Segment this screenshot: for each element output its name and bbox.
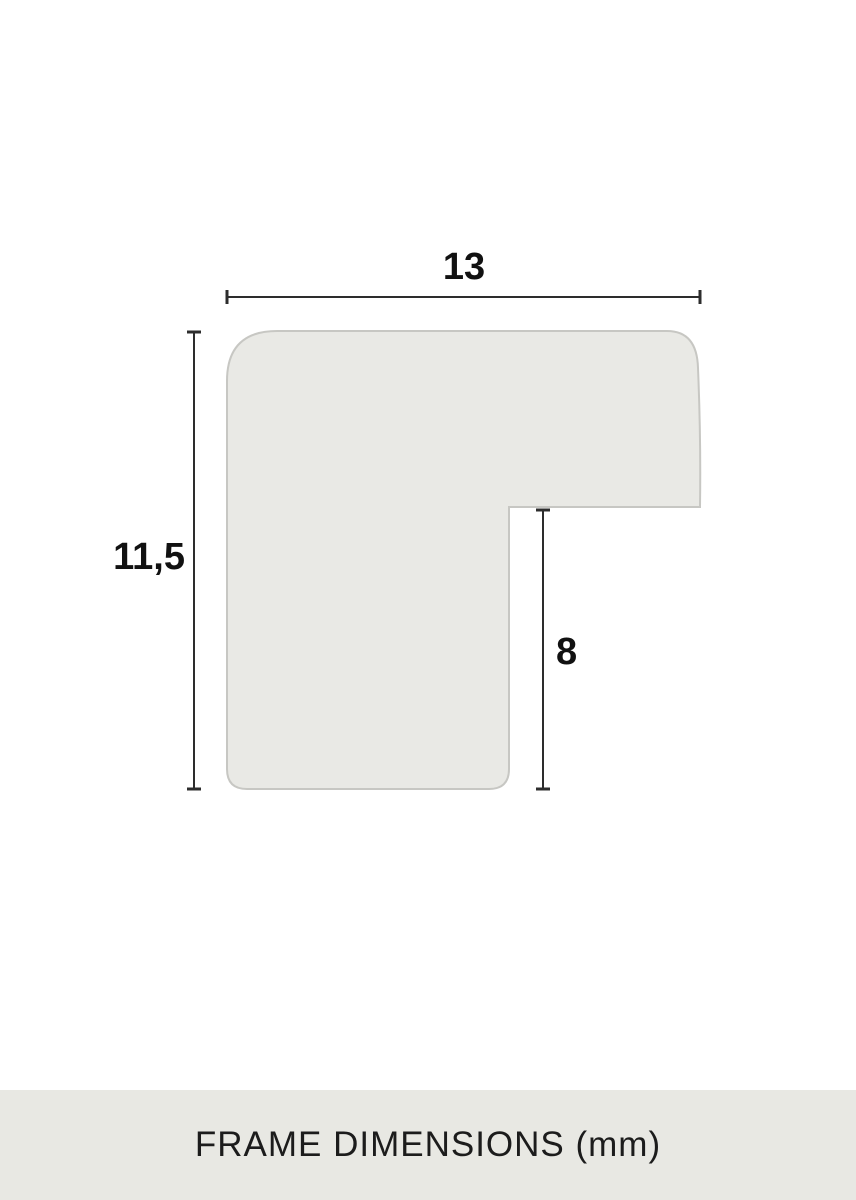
profile-drawing <box>0 0 856 1200</box>
height-dimension-label: 11,5 <box>75 536 185 580</box>
footer-caption-bar: FRAME DIMENSIONS (mm) <box>0 1090 856 1200</box>
frame-profile-shape <box>227 331 700 789</box>
rabbet-dimension <box>536 510 550 789</box>
height-dimension <box>187 332 201 789</box>
rabbet-dimension-label: 8 <box>556 631 577 675</box>
footer-caption: FRAME DIMENSIONS (mm) <box>195 1125 661 1165</box>
width-dimension-label: 13 <box>414 246 514 290</box>
frame-profile-diagram: 13 11,5 8 FRAME DIMENSIONS (mm) <box>0 0 856 1200</box>
width-dimension <box>227 290 700 304</box>
